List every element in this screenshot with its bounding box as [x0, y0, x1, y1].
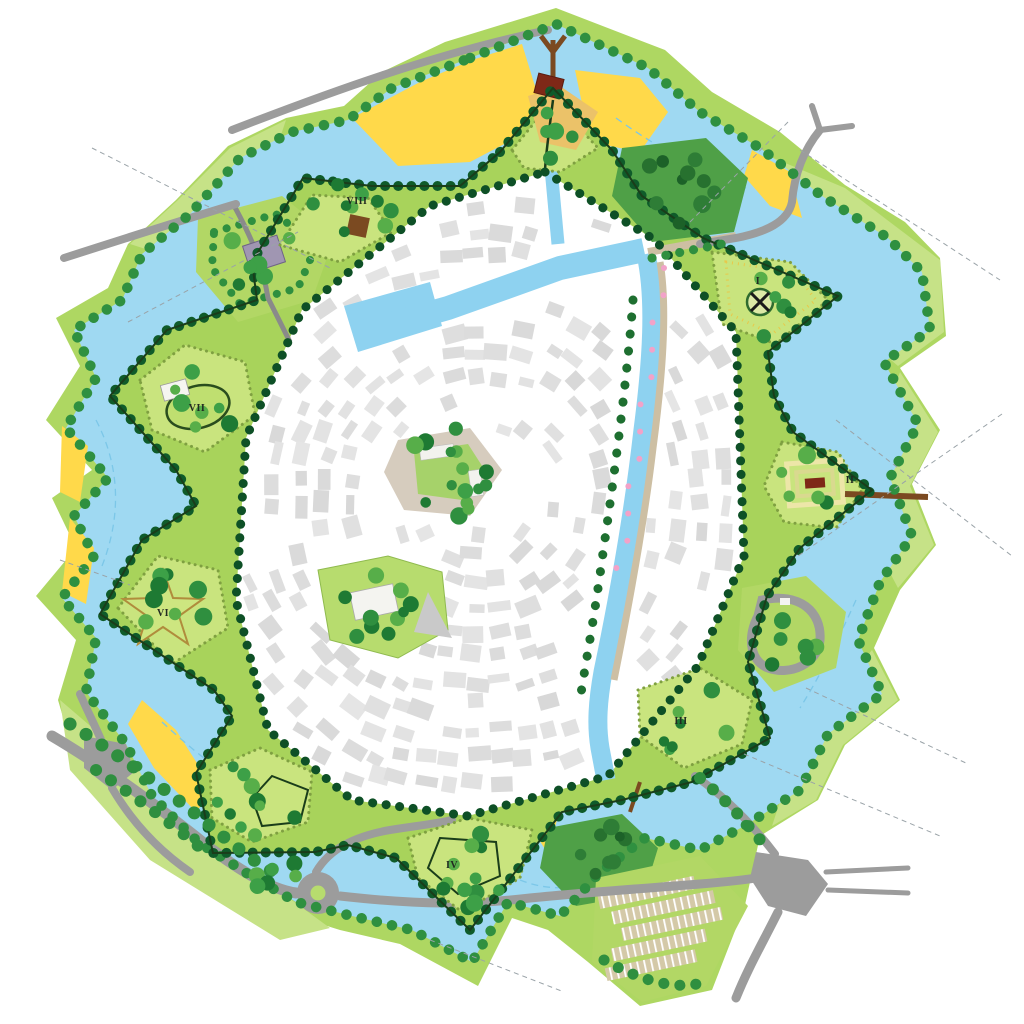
bastion-label-ii: II: [846, 475, 855, 486]
bastion-viii-building: [346, 214, 370, 238]
bastion-label-i: I: [756, 276, 760, 287]
bastion-label-iii: III: [674, 716, 687, 727]
junction-blob: [750, 852, 828, 916]
map-canvas: I II III IV VI VII VIII: [0, 0, 1024, 1024]
labyrinth-center: [805, 477, 826, 488]
bastion-label-viii: VIII: [347, 196, 368, 207]
road-east-stubs: [826, 868, 908, 893]
city-fortification-map: I II III IV VI VII VIII: [0, 0, 1024, 1024]
bastion-label-iv: IV: [446, 860, 458, 871]
bastion-label-vi: VI: [157, 608, 169, 619]
bastion-label-vii: VII: [189, 403, 206, 414]
road-fork-northeast: [812, 106, 852, 130]
